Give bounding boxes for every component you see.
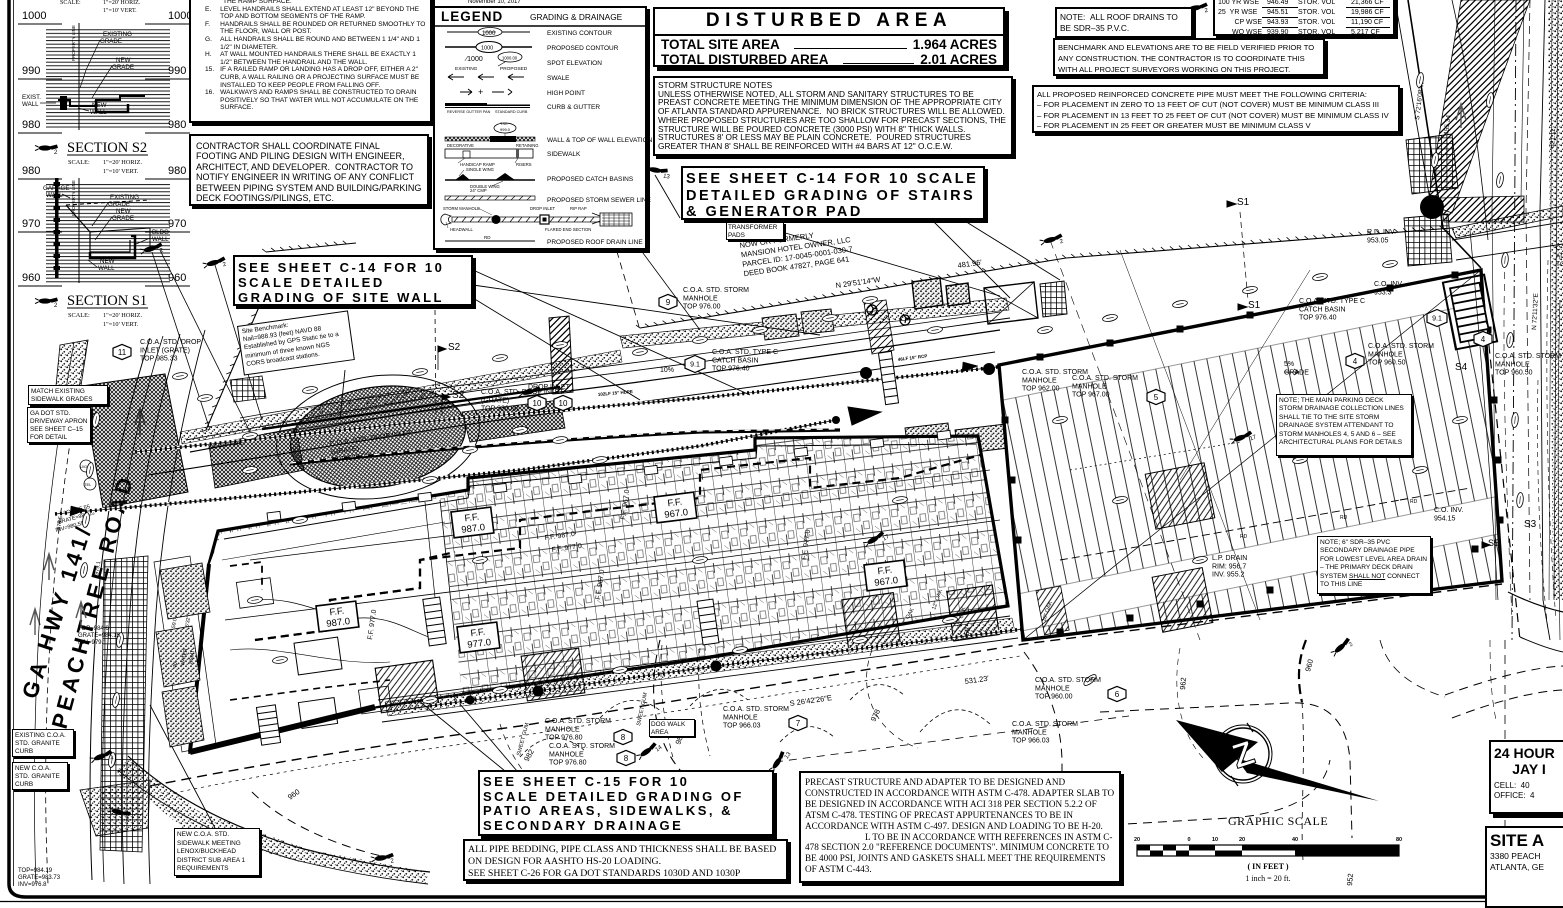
svg-text:40: 40 <box>1292 837 1298 843</box>
svg-text:1"=10' VERT.: 1"=10' VERT. <box>103 321 139 328</box>
svg-text:10: 10 <box>533 399 542 408</box>
svg-text:953.3: 953.3 <box>1374 289 1392 296</box>
svg-text:40′: 40′ <box>172 661 179 669</box>
svg-text:C.O.A. STD. STORM: C.O.A. STD. STORM <box>545 718 611 725</box>
svg-text:954.15: 954.15 <box>1434 515 1456 522</box>
svg-text:S4: S4 <box>1455 362 1468 373</box>
svg-text:GARAGE: GARAGE <box>43 185 69 192</box>
svg-text:9.1: 9.1 <box>690 361 700 368</box>
svg-text:TOP 967.00: TOP 967.00 <box>1072 392 1110 399</box>
svg-text:TOP 960.50: TOP 960.50 <box>1368 360 1406 367</box>
svg-text:RIM: 956.7: RIM: 956.7 <box>1212 563 1246 570</box>
svg-text:1000: 1000 <box>22 10 46 22</box>
svg-text:MANHOLE: MANHOLE <box>683 295 718 302</box>
svg-text:BLDG: BLDG <box>152 229 169 236</box>
svg-text:NEW: NEW <box>116 208 131 215</box>
svg-text:953.05: 953.05 <box>1367 237 1389 244</box>
svg-text:5%: 5% <box>1284 361 1294 368</box>
svg-text:TOP 976.40: TOP 976.40 <box>1299 315 1337 322</box>
svg-text:20: 20 <box>1239 837 1245 843</box>
svg-text:L.P. DRAIN: L.P. DRAIN <box>1212 555 1247 562</box>
svg-text:GRADE: GRADE <box>112 215 134 222</box>
svg-text:RD: RD <box>1240 534 1248 540</box>
svg-text:TOP=984.6: TOP=984.6 <box>78 626 109 632</box>
svg-text:970: 970 <box>168 218 186 230</box>
svg-text:WALL: WALL <box>22 101 39 108</box>
svg-text:RD: RD <box>1410 499 1418 505</box>
svg-text:9: 9 <box>666 298 671 307</box>
svg-text:0: 0 <box>1187 837 1190 843</box>
svg-text:EXISTING: EXISTING <box>110 194 139 201</box>
svg-text:970: 970 <box>22 218 40 230</box>
svg-text:S1: S1 <box>1237 197 1250 208</box>
svg-text:1"=20' HORIZ.: 1"=20' HORIZ. <box>103 159 143 166</box>
svg-text:8: 8 <box>624 754 629 763</box>
svg-text:TOP 976.80: TOP 976.80 <box>545 735 583 742</box>
svg-text:C.O.A. STD. STORM: C.O.A. STD. STORM <box>1368 343 1434 350</box>
svg-text:20: 20 <box>1134 837 1140 843</box>
svg-text:8: 8 <box>621 733 626 742</box>
svg-text:TOP 962.00: TOP 962.00 <box>1022 386 1060 393</box>
svg-text:960: 960 <box>22 272 40 284</box>
svg-text:WALL: WALL <box>90 109 107 116</box>
svg-text:WALL: WALL <box>152 236 169 243</box>
svg-text:TOP 985.33: TOP 985.33 <box>140 356 178 363</box>
svg-text:SECTION S1: SECTION S1 <box>67 293 147 309</box>
svg-text:GRADE: GRADE <box>108 201 130 208</box>
svg-text:C.O.A. STD. STORM: C.O.A. STD. STORM <box>1035 677 1101 684</box>
svg-text:NEW: NEW <box>100 258 115 265</box>
svg-text:1"=10' VERT.: 1"=10' VERT. <box>103 168 139 175</box>
svg-text:NEW: NEW <box>116 57 131 64</box>
svg-text:TOP 966.03: TOP 966.03 <box>1012 738 1050 745</box>
svg-text:GRADE: GRADE <box>100 38 122 45</box>
svg-text:TOP 986.00: TOP 986.00 <box>481 406 519 413</box>
svg-text:80: 80 <box>1396 837 1402 843</box>
svg-text:980: 980 <box>168 165 186 177</box>
svg-text:952: 952 <box>1345 873 1355 886</box>
svg-text:C.O.A. STD. STORM: C.O.A. STD. STORM <box>683 287 749 294</box>
svg-text:C.O. INV.: C.O. INV. <box>1374 281 1403 288</box>
svg-text:1 inch = 20 ft.: 1 inch = 20 ft. <box>1245 874 1290 883</box>
svg-text:CATCH BASIN: CATCH BASIN <box>712 357 759 364</box>
svg-text:980: 980 <box>22 119 40 131</box>
svg-text:SCALE:: SCALE: <box>68 312 90 319</box>
svg-text:R.D. INV.: R.D. INV. <box>1367 229 1396 236</box>
svg-text:( IN FEET ): ( IN FEET ) <box>1248 862 1289 871</box>
svg-text:SCALE:: SCALE: <box>60 0 81 6</box>
svg-text:GRAPHIC SCALE: GRAPHIC SCALE <box>1228 814 1328 828</box>
svg-text:10: 10 <box>1212 837 1218 843</box>
svg-text:960: 960 <box>168 272 186 284</box>
svg-text:RD: RD <box>1340 515 1348 521</box>
svg-text:EXISTING: EXISTING <box>103 31 132 38</box>
svg-text:980: 980 <box>168 119 186 131</box>
svg-text:DROP INLET: DROP INLET <box>528 384 571 391</box>
svg-text:C.O.A. STD. STORM: C.O.A. STD. STORM <box>1495 353 1561 360</box>
svg-text:MANHOLE: MANHOLE <box>549 751 584 758</box>
svg-text:6: 6 <box>1115 690 1120 699</box>
svg-text:(GRATE): (GRATE) <box>481 397 509 404</box>
svg-text:INV=979.1: INV=979.1 <box>78 640 107 646</box>
svg-text:1"=10' VERT.: 1"=10' VERT. <box>103 8 137 14</box>
svg-text:4: 4 <box>1481 335 1486 344</box>
svg-text:TOP 976.40: TOP 976.40 <box>712 366 750 373</box>
svg-text:S5: S5 <box>1488 538 1499 548</box>
svg-text:MANHOLE: MANHOLE <box>1035 685 1070 692</box>
svg-text:GRATE=983.73: GRATE=983.73 <box>18 875 61 881</box>
svg-text:PROPERTY LINE: PROPERTY LINE <box>71 25 76 61</box>
svg-text:GRATE=984.15: GRATE=984.15 <box>78 633 121 639</box>
svg-text:S3: S3 <box>1524 519 1537 530</box>
svg-text:November 10, 2017: November 10, 2017 <box>468 0 521 5</box>
svg-text:MANHOLE: MANHOLE <box>1495 361 1530 368</box>
svg-text:CATCH BASIN: CATCH BASIN <box>1299 306 1346 313</box>
svg-text:10: 10 <box>559 399 568 408</box>
svg-text:C.O.A. STD. DROP: C.O.A. STD. DROP <box>140 339 201 346</box>
svg-text:SCALE:: SCALE: <box>68 159 90 166</box>
svg-text:INV=976.8: INV=976.8 <box>18 882 47 888</box>
svg-text:C.O.A. STD. TYPE C: C.O.A. STD. TYPE C <box>712 349 778 356</box>
svg-text:9.1: 9.1 <box>1432 315 1442 322</box>
svg-text:962: 962 <box>1178 677 1188 690</box>
svg-text:7: 7 <box>796 719 801 728</box>
svg-text:1"=20' HORIZ.: 1"=20' HORIZ. <box>103 312 143 319</box>
svg-text:990: 990 <box>168 65 186 77</box>
svg-text:TOP 976.00: TOP 976.00 <box>683 304 721 311</box>
svg-text:10%: 10% <box>660 367 674 374</box>
svg-text:NEW: NEW <box>92 102 107 109</box>
svg-text:5: 5 <box>1154 393 1159 402</box>
svg-text:4: 4 <box>1353 357 1358 366</box>
svg-text:11: 11 <box>118 348 127 357</box>
svg-text:TOP 976.80: TOP 976.80 <box>549 760 587 767</box>
svg-text:C.O.A. STD. STORM: C.O.A. STD. STORM <box>1072 375 1138 382</box>
svg-text:MANHOLE: MANHOLE <box>545 726 580 733</box>
svg-text:MANHOLE: MANHOLE <box>1022 377 1057 384</box>
svg-text:GRADE: GRADE <box>112 64 134 71</box>
svg-text:INV. 955.2: INV. 955.2 <box>1212 572 1245 579</box>
svg-text:TOP=984.19: TOP=984.19 <box>18 868 53 874</box>
svg-text:TOP 966.03: TOP 966.03 <box>723 723 761 730</box>
svg-text:C.O. INV.: C.O. INV. <box>1434 507 1463 514</box>
svg-text:C.O.A. STD. TYPE C: C.O.A. STD. TYPE C <box>1299 298 1365 305</box>
svg-text:EXIST.: EXIST. <box>22 94 41 101</box>
svg-text:TEL: TEL <box>84 482 92 487</box>
svg-text:C.O.A. STD. STORM: C.O.A. STD. STORM <box>549 743 615 750</box>
svg-text:990: 990 <box>22 65 40 77</box>
svg-text:WALL: WALL <box>98 265 115 272</box>
svg-text:S2: S2 <box>452 390 465 401</box>
svg-text:TOP 960.50: TOP 960.50 <box>1495 370 1533 377</box>
svg-text:C.O.A. STD. STORM: C.O.A. STD. STORM <box>723 706 789 713</box>
svg-text:MANHOLE: MANHOLE <box>1012 729 1047 736</box>
svg-text:S1: S1 <box>1248 300 1261 311</box>
svg-text:1"=20' HORIZ.: 1"=20' HORIZ. <box>103 0 141 6</box>
svg-text:INLET (GRATE): INLET (GRATE) <box>140 347 190 354</box>
svg-text:SECTION S2: SECTION S2 <box>67 140 147 156</box>
svg-text:S2: S2 <box>448 342 461 353</box>
svg-text:MANHOLE: MANHOLE <box>723 714 758 721</box>
svg-text:WALL: WALL <box>46 192 63 199</box>
svg-text:TOP 960.00: TOP 960.00 <box>1035 694 1073 701</box>
svg-text:C.O.A. STD. STORM: C.O.A. STD. STORM <box>1012 721 1078 728</box>
svg-text:MANHOLE: MANHOLE <box>1368 351 1403 358</box>
svg-text:980: 980 <box>22 165 40 177</box>
svg-text:MANHOLE: MANHOLE <box>1072 383 1107 390</box>
svg-text:U/G: U/G <box>80 464 87 469</box>
